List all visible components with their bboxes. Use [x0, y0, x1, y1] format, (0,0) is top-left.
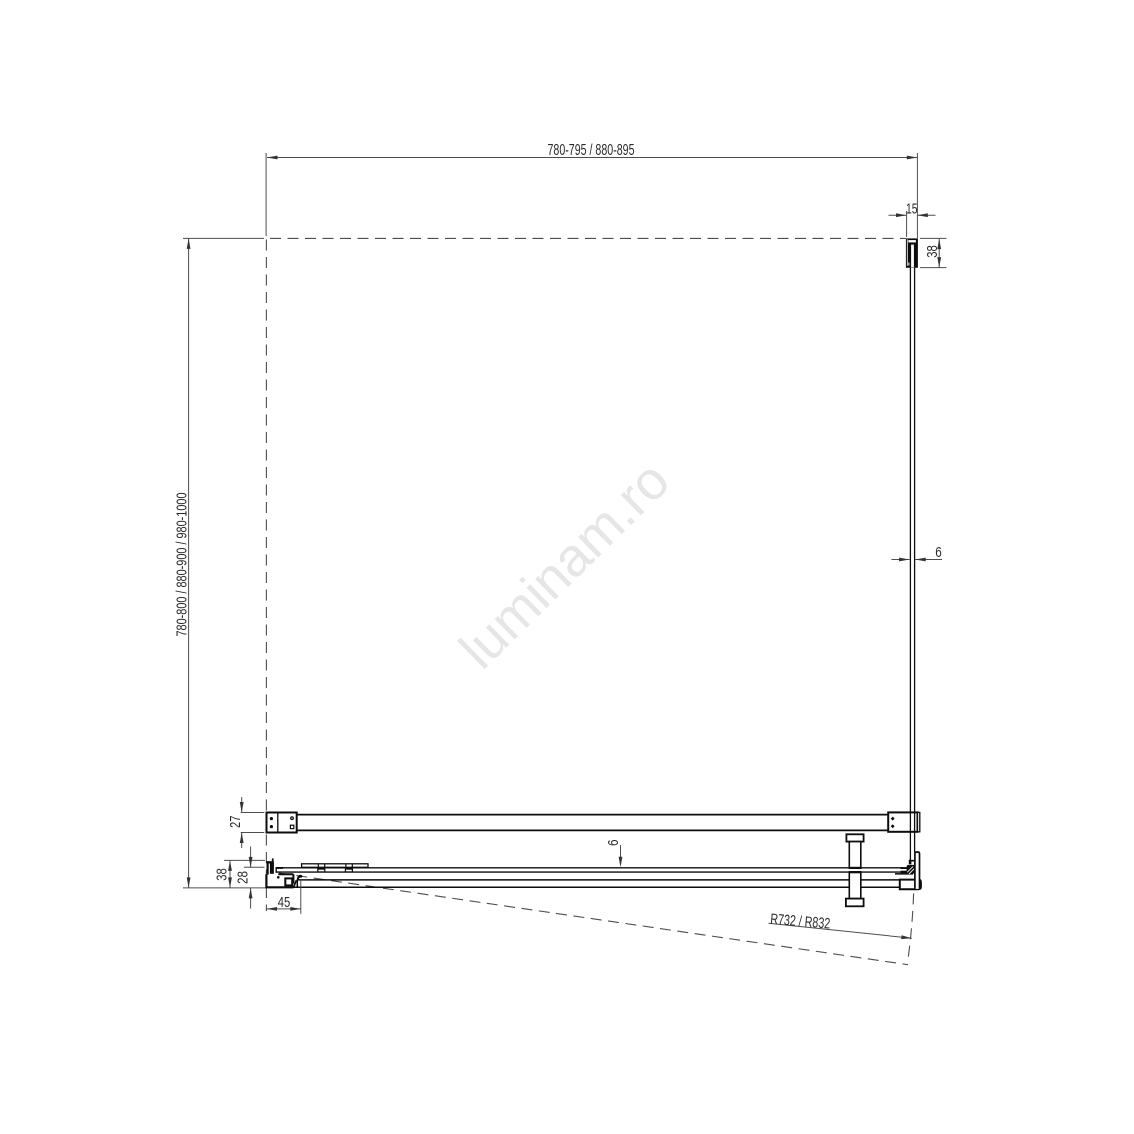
- svg-text:45: 45: [278, 894, 291, 911]
- svg-text:6: 6: [605, 840, 622, 847]
- svg-text:38: 38: [924, 245, 941, 258]
- svg-text:15: 15: [906, 201, 918, 218]
- svg-text:780-795 / 880-895: 780-795 / 880-895: [548, 142, 635, 159]
- svg-text:6: 6: [935, 544, 942, 561]
- svg-text:38: 38: [214, 868, 231, 881]
- svg-text:28: 28: [235, 871, 252, 884]
- svg-text:780-800 / 880-900 / 980-1000: 780-800 / 880-900 / 980-1000: [174, 493, 191, 637]
- svg-text:27: 27: [227, 816, 244, 829]
